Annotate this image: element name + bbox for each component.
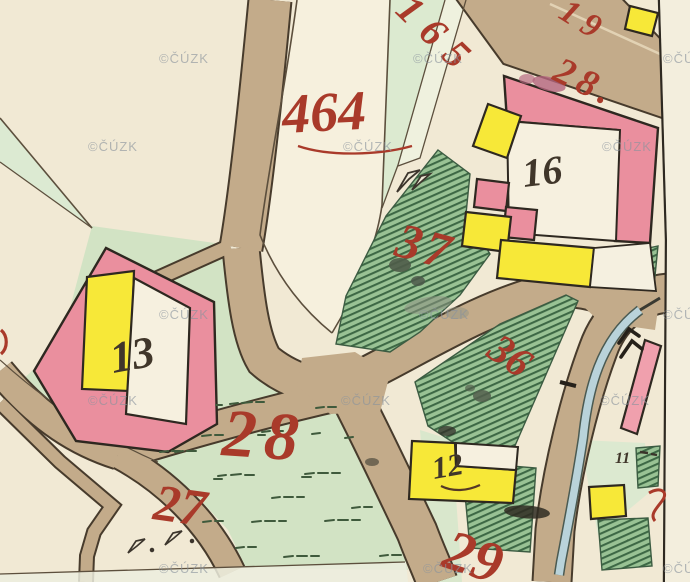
svg-text:©ČÚZK: ©ČÚZK [600,393,650,408]
svg-text:©ČÚZK: ©ČÚZK [88,139,138,154]
svg-text:©ČÚZK: ©ČÚZK [663,561,690,576]
svg-text:464: 464 [279,80,367,146]
svg-text:28: 28 [219,394,309,476]
svg-text:©ČÚZK: ©ČÚZK [341,393,391,408]
svg-text:©ČÚZK: ©ČÚZK [159,51,209,66]
svg-text:27: 27 [149,474,211,538]
svg-text:©ČÚZK: ©ČÚZK [663,307,690,322]
svg-text:©ČÚZK: ©ČÚZK [159,307,209,322]
svg-text:©ČÚZK: ©ČÚZK [88,393,138,408]
svg-text:11: 11 [615,450,630,467]
svg-text:©ČÚZK: ©ČÚZK [419,307,469,322]
svg-text:©ČÚZK: ©ČÚZK [663,51,690,66]
svg-text:©ČÚZK: ©ČÚZK [159,561,209,576]
svg-text:©ČÚZK: ©ČÚZK [343,139,393,154]
svg-text:16: 16 [520,146,565,196]
svg-text:©ČÚZK: ©ČÚZK [602,139,652,154]
svg-text:©ČÚZK: ©ČÚZK [423,561,473,576]
svg-text:©ČÚZK: ©ČÚZK [413,51,463,66]
svg-text:13: 13 [106,327,158,383]
svg-text:12: 12 [429,446,466,486]
